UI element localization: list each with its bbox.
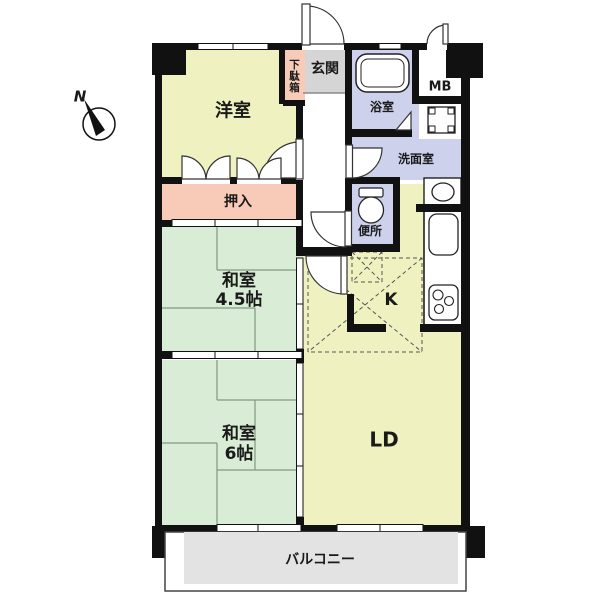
benjo-door-leaf [345, 211, 352, 246]
label-getabako: 下駄箱 [288, 59, 300, 94]
label-kitchen: K [384, 291, 397, 311]
toilet-icon [359, 188, 384, 223]
label-ld: LD [369, 429, 398, 452]
entrance-door-swing [306, 6, 344, 44]
label-benjo: 便所 [358, 225, 382, 239]
label-senmenshitsu: 洗面室 [398, 153, 434, 167]
sliding-door [172, 352, 302, 359]
label-washitsu45-line1: 和室 [222, 272, 256, 292]
label-washitsu6-line1: 和室 [222, 425, 256, 445]
sliding-door [172, 220, 302, 227]
pillar-top-left [152, 43, 186, 75]
mb-door-leaf [443, 24, 448, 44]
label-balcony: バルコニー [285, 552, 355, 568]
label-oshiire: 押入 [224, 194, 252, 210]
floor-plan: N 洋室 下駄箱 玄関 浴室 MB 洗面室 便所 押入 和室 4.5帖 K 和室… [0, 0, 600, 600]
room-fills [162, 48, 461, 525]
label-washitsu45-line2: 4.5帖 [215, 291, 262, 311]
north-arrow-icon [83, 99, 115, 140]
label-washitsu6-line2: 6帖 [225, 445, 254, 465]
label-genkan: 玄関 [311, 61, 339, 77]
label-mb: MB [429, 81, 452, 96]
window [217, 525, 301, 532]
yoshitsu-door-leaf [296, 139, 303, 179]
senmen-door-leaf [346, 145, 353, 178]
wash-basin-icon [432, 183, 454, 201]
kitchen-sink-icon [429, 214, 458, 255]
sliding-door [297, 363, 304, 517]
hall-ld-door-leaf [341, 256, 347, 294]
entrance-door-leaf [302, 4, 310, 45]
pillar-top-right [446, 43, 483, 78]
stove-icon [429, 285, 458, 320]
north-label: N [74, 88, 87, 105]
washing-machine-icon [428, 107, 455, 133]
label-yoshitsu: 洋室 [215, 102, 251, 123]
label-yokushitsu: 浴室 [370, 101, 394, 115]
window [379, 44, 401, 50]
